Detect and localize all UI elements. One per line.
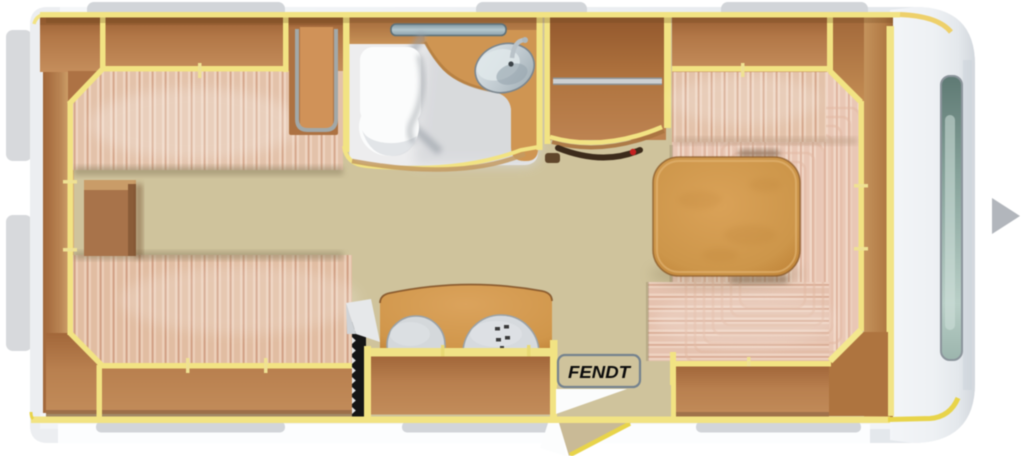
svg-text:FENDT: FENDT xyxy=(568,362,631,382)
